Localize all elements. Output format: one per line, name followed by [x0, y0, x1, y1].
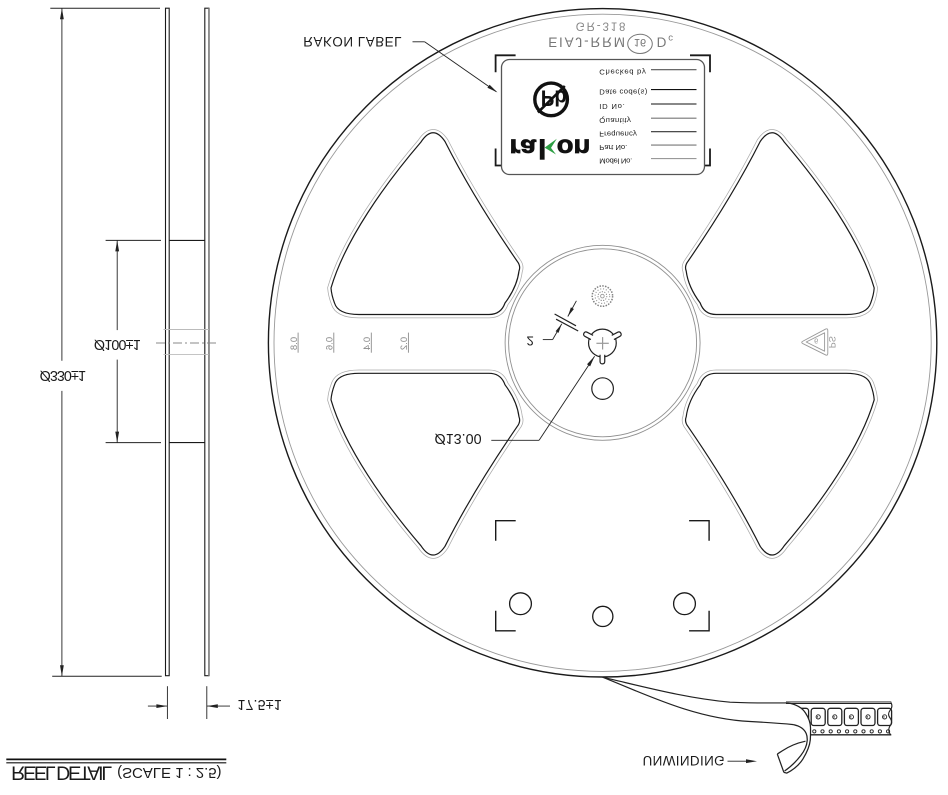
- svg-text:17.5±1: 17.5±1: [237, 696, 281, 712]
- svg-text:UNWINDING: UNWINDING: [643, 753, 725, 768]
- svg-text:Model No.: Model No.: [599, 156, 632, 165]
- svg-text:16: 16: [634, 36, 646, 48]
- svg-text:REEL DETAIL: REEL DETAIL: [11, 761, 112, 783]
- svg-text:EIAJ-RRM: EIAJ-RRM: [548, 34, 625, 49]
- svg-text:c: c: [668, 33, 673, 44]
- svg-text:Checked by: Checked by: [599, 68, 646, 77]
- svg-text:RAKON LABEL: RAKON LABEL: [303, 34, 401, 49]
- svg-text:Date code(s): Date code(s): [599, 87, 647, 96]
- svg-text:Ø100±1: Ø100±1: [94, 336, 141, 352]
- svg-text:Quantity: Quantity: [599, 116, 631, 125]
- svg-text:D: D: [657, 35, 667, 50]
- svg-text:ra: ra: [510, 134, 538, 162]
- svg-text:on: on: [557, 134, 591, 162]
- svg-text:2: 2: [527, 333, 534, 348]
- svg-text:(SCALE 1 : 2.5): (SCALE 1 : 2.5): [117, 764, 221, 781]
- svg-text:Part No.: Part No.: [599, 143, 627, 152]
- svg-text:Frequency: Frequency: [599, 130, 637, 139]
- svg-text:Ø13.00: Ø13.00: [435, 430, 482, 446]
- svg-text:ID No.: ID No.: [599, 102, 625, 111]
- svg-text:Ø330±1: Ø330±1: [40, 367, 86, 383]
- svg-text:PS: PS: [827, 336, 837, 348]
- svg-text:6: 6: [814, 337, 818, 346]
